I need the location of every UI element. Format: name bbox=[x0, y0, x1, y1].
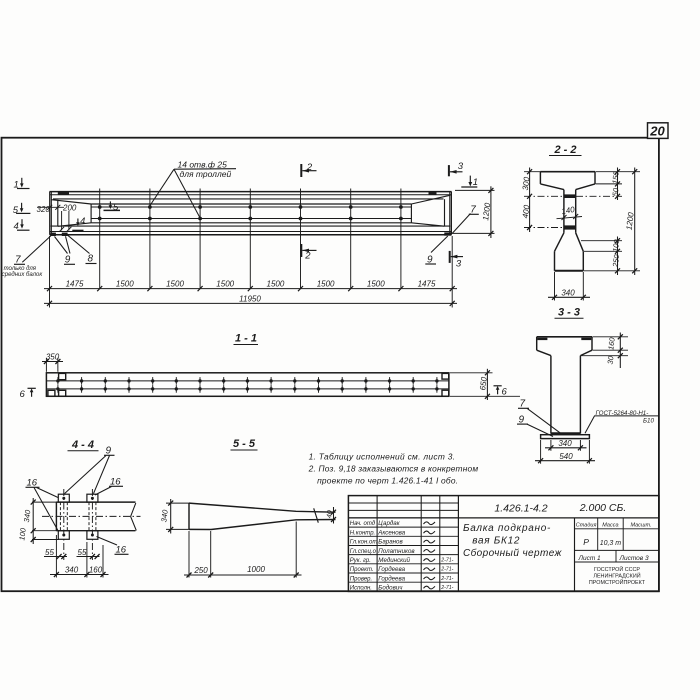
svg-text:250: 250 bbox=[193, 566, 208, 575]
svg-text:160: 160 bbox=[89, 566, 103, 575]
svg-text:Гордеева: Гордеева bbox=[378, 566, 405, 573]
svg-text:Листов 3: Листов 3 bbox=[619, 555, 649, 562]
svg-text:Гордеева: Гордеева bbox=[378, 575, 405, 582]
svg-text:Стадия: Стадия bbox=[576, 522, 597, 528]
svg-text:350: 350 bbox=[46, 352, 60, 361]
svg-text:Гл.спец.о: Гл.спец.о bbox=[350, 549, 377, 555]
svg-text:340: 340 bbox=[22, 509, 33, 523]
svg-text:Лист 1: Лист 1 bbox=[578, 555, 602, 562]
svg-text:100: 100 bbox=[611, 238, 622, 252]
svg-text:340: 340 bbox=[561, 288, 575, 297]
svg-text:3: 3 bbox=[458, 161, 464, 172]
svg-text:ГОССТРОЙ СССР: ГОССТРОЙ СССР bbox=[594, 565, 640, 573]
svg-text:40: 40 bbox=[326, 510, 334, 519]
svg-text:340: 340 bbox=[159, 508, 170, 522]
svg-text:11950: 11950 bbox=[239, 295, 261, 304]
svg-text:6: 6 bbox=[20, 389, 26, 400]
svg-text:Исполн.: Исполн. bbox=[350, 586, 372, 592]
svg-text:7: 7 bbox=[470, 204, 476, 215]
svg-text:Проект.: Проект. bbox=[350, 567, 374, 573]
svg-text:55: 55 bbox=[78, 548, 87, 557]
svg-text:3 - 3: 3 - 3 bbox=[558, 307, 580, 319]
svg-text:2. Поз. 9,18 заказываются в ко: 2. Поз. 9,18 заказываются в конкретном bbox=[308, 464, 479, 474]
svg-text:250: 250 bbox=[611, 253, 622, 268]
svg-text:2-71-: 2-71- bbox=[440, 585, 453, 591]
svg-text:Полатников: Полатников bbox=[378, 548, 415, 555]
svg-text:1 - 1: 1 - 1 bbox=[235, 333, 257, 345]
svg-text:200: 200 bbox=[62, 203, 77, 212]
svg-text:2.000 СБ.: 2.000 СБ. bbox=[579, 502, 627, 514]
svg-text:5 - 5: 5 - 5 bbox=[233, 438, 256, 450]
svg-text:6: 6 bbox=[502, 386, 508, 397]
svg-text:проекте по черт 1.426.1-41 I о: проекте по черт 1.426.1-41 I обо. bbox=[317, 476, 458, 486]
svg-text:1500: 1500 bbox=[367, 280, 385, 289]
svg-text:Цардак: Цардак bbox=[378, 520, 400, 527]
svg-text:400: 400 bbox=[521, 204, 532, 219]
svg-text:Гл.кон.от: Гл.кон.от bbox=[350, 540, 378, 546]
svg-text:1500: 1500 bbox=[216, 280, 234, 289]
svg-text:1475: 1475 bbox=[418, 280, 436, 289]
svg-text:1500: 1500 bbox=[267, 280, 285, 289]
svg-text:340: 340 bbox=[558, 439, 572, 448]
svg-text:2-71-: 2-71- bbox=[440, 567, 453, 573]
svg-text:2: 2 bbox=[304, 251, 311, 262]
svg-text:540: 540 bbox=[559, 452, 573, 461]
svg-text:Баранов: Баранов bbox=[378, 539, 403, 546]
svg-text:2: 2 bbox=[306, 162, 313, 173]
svg-text:10,3 т: 10,3 т bbox=[600, 540, 622, 547]
svg-text:4: 4 bbox=[80, 216, 85, 227]
svg-text:Н.контр.: Н.контр. bbox=[350, 530, 375, 536]
svg-text:ЛЕНИНГРАДСКИЙ: ЛЕНИНГРАДСКИЙ bbox=[593, 571, 640, 579]
svg-text:55: 55 bbox=[45, 548, 54, 557]
svg-text:ПРОМСТРОЙПРОЕКТ: ПРОМСТРОЙПРОЕКТ bbox=[589, 578, 646, 586]
svg-text:для троллей: для троллей bbox=[180, 169, 232, 179]
svg-text:1.426.1-4.2: 1.426.1-4.2 bbox=[494, 503, 547, 515]
svg-text:1: 1 bbox=[473, 177, 478, 188]
svg-text:4 - 4: 4 - 4 bbox=[71, 439, 94, 451]
svg-text:100: 100 bbox=[17, 527, 28, 541]
svg-text:14 отв.ф 25: 14 отв.ф 25 bbox=[178, 159, 228, 169]
svg-text:2 - 2: 2 - 2 bbox=[553, 144, 576, 156]
svg-text:Рук. гр.: Рук. гр. bbox=[350, 558, 371, 564]
svg-text:1500: 1500 bbox=[166, 280, 184, 289]
svg-text:Аксенова: Аксенова bbox=[377, 529, 405, 536]
svg-text:Мединский: Мединский bbox=[378, 557, 410, 564]
svg-text:340: 340 bbox=[65, 566, 79, 575]
svg-text:Масшт.: Масшт. bbox=[630, 522, 651, 528]
svg-text:Балка подкрано-: Балка подкрано- bbox=[463, 523, 551, 534]
svg-text:1. Таблицу исполнений см. лис: 1. Таблицу исполнений см. лист 3. bbox=[309, 452, 456, 462]
svg-text:Провер.: Провер. bbox=[350, 576, 372, 582]
svg-text:Сборочный чертеж: Сборочный чертеж bbox=[463, 547, 563, 559]
svg-text:Р: Р bbox=[583, 537, 589, 547]
svg-text:ГОСТ-5264-80-Н1-: ГОСТ-5264-80-Н1- bbox=[596, 410, 649, 417]
svg-text:Б10: Б10 bbox=[643, 418, 654, 425]
svg-text:Нач. отд: Нач. отд bbox=[350, 521, 376, 527]
svg-text:1500: 1500 bbox=[317, 280, 335, 289]
svg-text:1000: 1000 bbox=[247, 565, 265, 574]
svg-text:300: 300 bbox=[521, 176, 532, 191]
svg-text:средних балок: средних балок bbox=[2, 272, 44, 278]
svg-text:5: 5 bbox=[113, 202, 119, 213]
svg-text:3: 3 bbox=[456, 259, 462, 270]
svg-text:5: 5 bbox=[13, 205, 19, 216]
svg-text:2-71-: 2-71- bbox=[440, 557, 453, 563]
svg-text:Масса: Масса bbox=[602, 522, 618, 528]
svg-text:вая БК12: вая БК12 bbox=[472, 536, 520, 547]
svg-text:650: 650 bbox=[478, 376, 489, 391]
svg-text:150: 150 bbox=[610, 170, 621, 184]
svg-text:1475: 1475 bbox=[66, 280, 84, 289]
svg-text:2-71-: 2-71- bbox=[440, 576, 453, 582]
svg-text:Бодович: Бодович bbox=[378, 585, 403, 592]
svg-text:1500: 1500 bbox=[116, 280, 134, 289]
svg-text:20: 20 bbox=[649, 124, 665, 139]
svg-text:8: 8 bbox=[88, 254, 94, 265]
svg-text:160: 160 bbox=[606, 336, 617, 350]
